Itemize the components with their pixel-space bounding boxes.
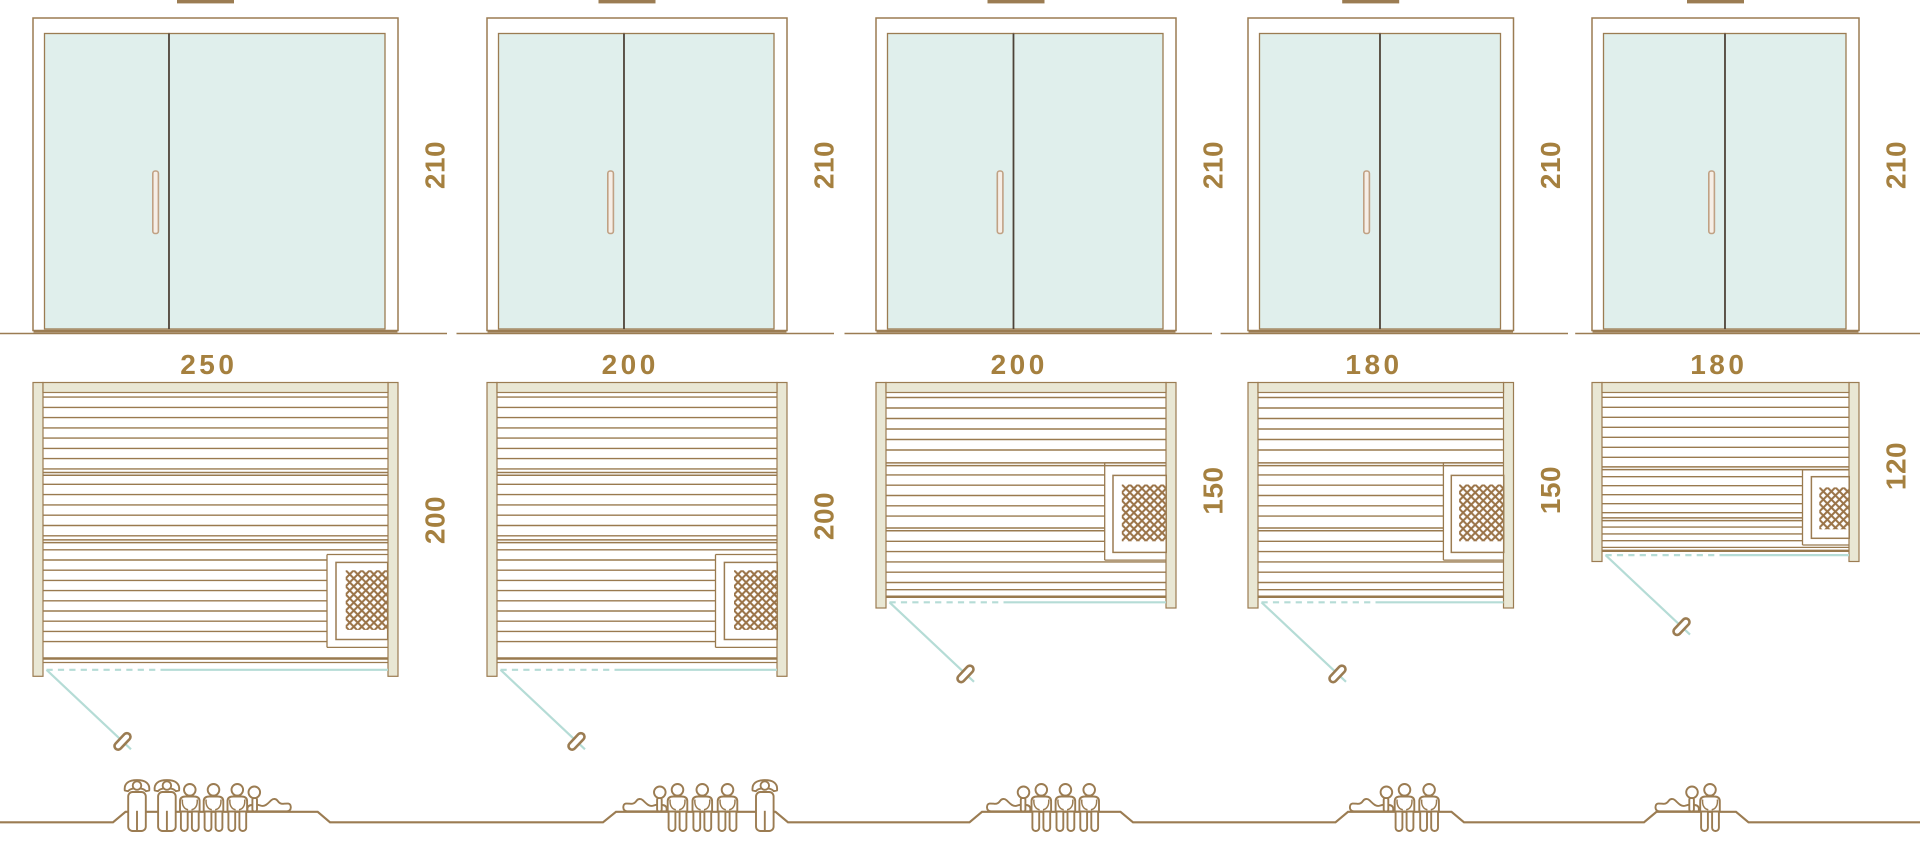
svg-text:200: 200 [809,492,840,540]
svg-text:180: 180 [1690,349,1747,380]
svg-text:210: 210 [420,141,451,189]
svg-text:150: 150 [1198,466,1229,514]
svg-text:210: 210 [1881,141,1912,189]
svg-text:210: 210 [809,141,840,189]
svg-text:210: 210 [1535,141,1566,189]
svg-text:180: 180 [1345,349,1402,380]
svg-text:200: 200 [991,349,1048,380]
svg-text:250: 250 [180,349,237,380]
svg-text:200: 200 [602,349,659,380]
svg-text:210: 210 [1198,141,1229,189]
svg-text:150: 150 [1535,466,1566,514]
svg-text:200: 200 [420,496,451,544]
svg-text:120: 120 [1881,442,1912,490]
